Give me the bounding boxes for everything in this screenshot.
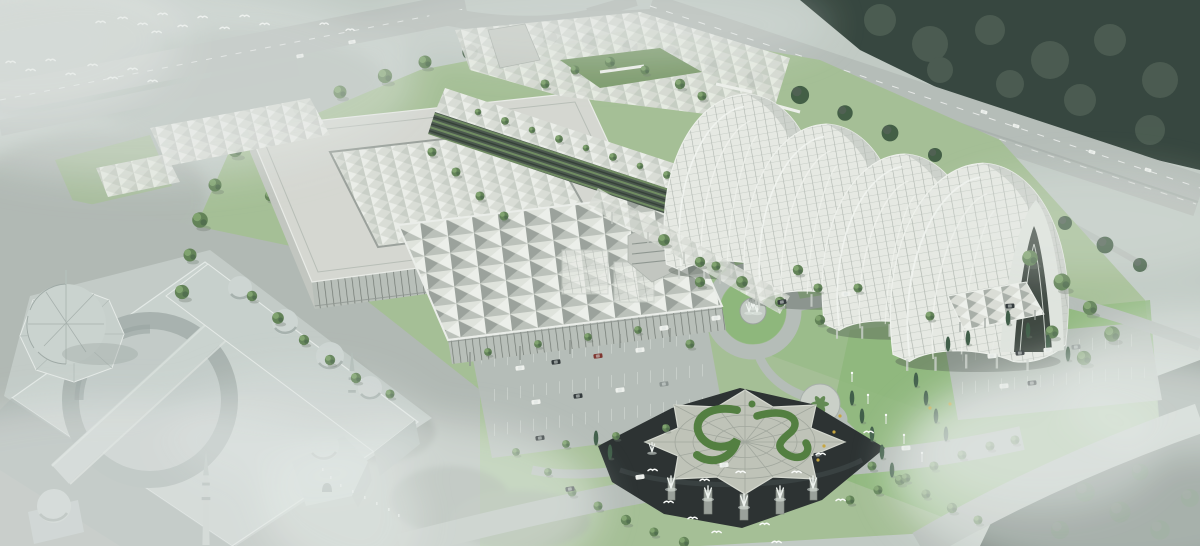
architectural-rendering <box>0 0 1200 546</box>
color-grade <box>0 0 1200 546</box>
rendering-canvas <box>0 0 1200 546</box>
